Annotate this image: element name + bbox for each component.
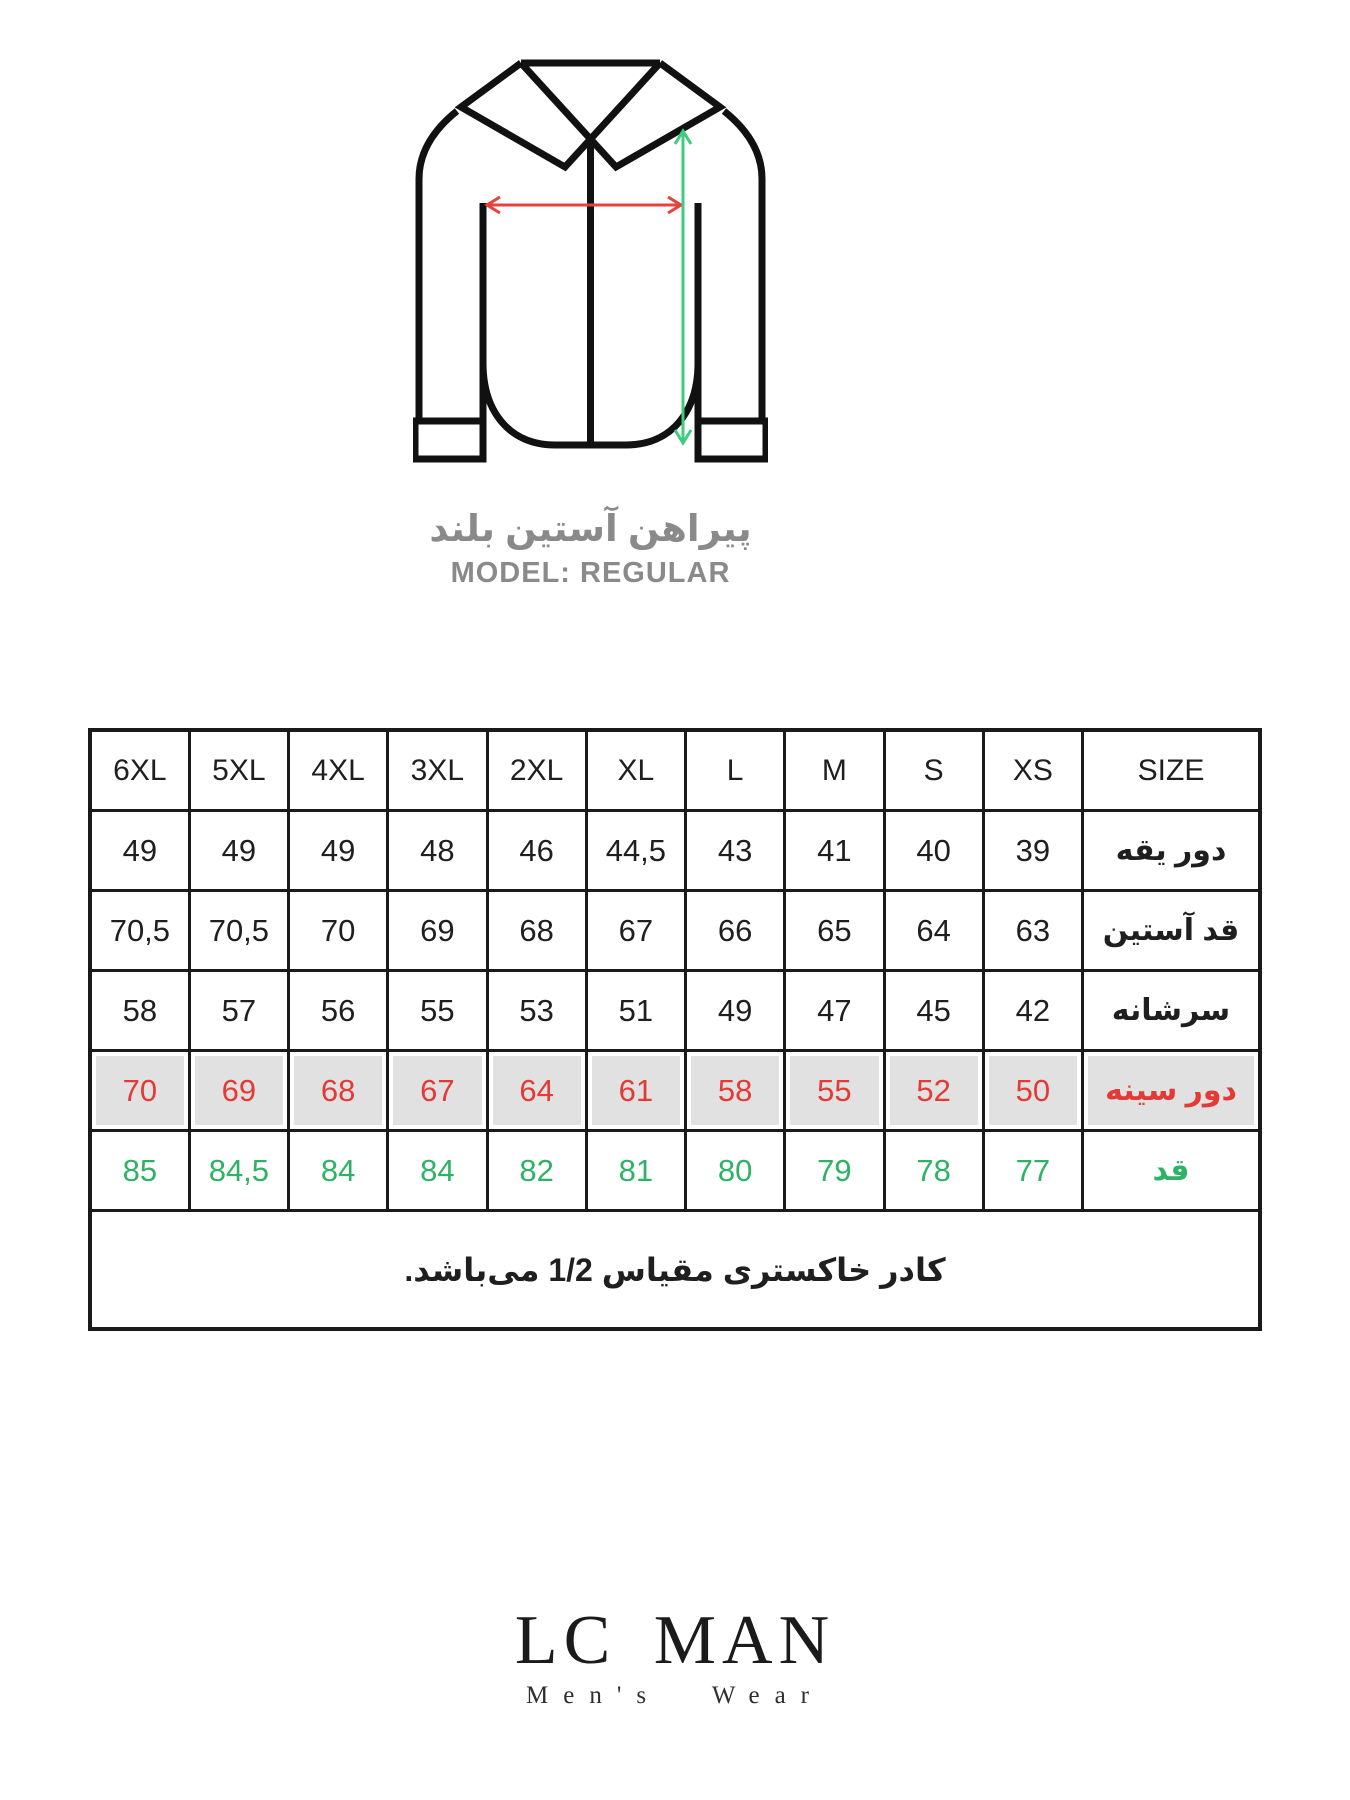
size-table: 6XL 5XL 4XL 3XL 2XL XL L M S XS SIZE 49 … [88, 728, 1262, 1331]
measure-cell: 70,5 [90, 891, 189, 971]
right-sleeve-outer [724, 111, 762, 421]
measure-cell: 63 [983, 891, 1082, 971]
size-column-header: 4XL [289, 730, 388, 811]
brand-logo-name: LC MAN [0, 1606, 1350, 1676]
length-arrow [675, 131, 691, 443]
collar-left-leaf [461, 63, 660, 167]
size-column-header: 5XL [189, 730, 288, 811]
measure-cell: 85 [90, 1131, 189, 1211]
size-label-header: SIZE [1083, 730, 1261, 811]
measure-cell: 48 [388, 811, 487, 891]
collar-row: 49 49 49 48 46 44,5 43 41 40 39 دور یقه [90, 811, 1260, 891]
measure-cell: 45 [884, 971, 983, 1051]
measure-cell: 56 [289, 971, 388, 1051]
measure-cell: 67 [388, 1051, 487, 1131]
measure-cell: 51 [586, 971, 685, 1051]
row-label-length: قد [1083, 1131, 1261, 1211]
measure-cell: 84 [289, 1131, 388, 1211]
measure-cell: 77 [983, 1131, 1082, 1211]
shoulder-row: 58 57 56 55 53 51 49 47 45 42 سرشانه [90, 971, 1260, 1051]
measure-cell: 41 [785, 811, 884, 891]
measure-cell: 70,5 [189, 891, 288, 971]
measure-cell: 70 [289, 891, 388, 971]
measure-cell: 43 [686, 811, 785, 891]
measure-cell: 81 [586, 1131, 685, 1211]
left-cuff [415, 421, 483, 459]
measure-cell: 49 [289, 811, 388, 891]
shirt-outline [415, 63, 766, 459]
size-column-header: XL [586, 730, 685, 811]
measure-cell: 64 [884, 891, 983, 971]
size-column-header: 6XL [90, 730, 189, 811]
brand-logo: LC MAN Men's Wear [0, 1606, 1350, 1710]
measure-cell: 53 [487, 971, 586, 1051]
size-column-header: 2XL [487, 730, 586, 811]
row-label-shoulder: سرشانه [1083, 971, 1261, 1051]
size-column-header: L [686, 730, 785, 811]
length-row: 85 84,5 84 84 82 81 80 79 78 77 قد [90, 1131, 1260, 1211]
measure-cell: 39 [983, 811, 1082, 891]
size-column-header: XS [983, 730, 1082, 811]
row-label-sleeve: قد آستین [1083, 891, 1261, 971]
left-sleeve-outer [419, 111, 457, 421]
shirt-diagram-block: پیراهن آستین بلند MODEL: REGULAR [413, 55, 768, 590]
row-label-chest: دور سینه [1083, 1051, 1261, 1131]
measure-cell: 64 [487, 1051, 586, 1131]
measure-cell: 49 [686, 971, 785, 1051]
measure-cell: 82 [487, 1131, 586, 1211]
measure-cell: 58 [90, 971, 189, 1051]
measure-cell: 65 [785, 891, 884, 971]
collar-right-leaf [521, 63, 720, 167]
measure-cell: 78 [884, 1131, 983, 1211]
measure-cell: 40 [884, 811, 983, 891]
chest-width-arrow [487, 197, 681, 213]
measure-cell: 70 [90, 1051, 189, 1131]
measure-cell: 68 [289, 1051, 388, 1131]
row-label-collar: دور یقه [1083, 811, 1261, 891]
table-note-row: کادر خاکستری مقیاس 1/2 می‌باشد. [90, 1211, 1260, 1330]
measure-cell: 57 [189, 971, 288, 1051]
measure-cell: 44,5 [586, 811, 685, 891]
sleeve-length-row: 70,5 70,5 70 69 68 67 66 65 64 63 قد آست… [90, 891, 1260, 971]
brand-logo-tagline: Men's Wear [0, 1682, 1350, 1710]
measure-cell: 68 [487, 891, 586, 971]
size-column-header: 3XL [388, 730, 487, 811]
measure-cell: 80 [686, 1131, 785, 1211]
measure-cell: 46 [487, 811, 586, 891]
measure-cell: 49 [90, 811, 189, 891]
measure-cell: 69 [388, 891, 487, 971]
measure-cell: 61 [586, 1051, 685, 1131]
size-column-header: S [884, 730, 983, 811]
measure-cell: 79 [785, 1131, 884, 1211]
measure-cell: 42 [983, 971, 1082, 1051]
model-label: MODEL: REGULAR [413, 558, 768, 590]
measure-cell: 55 [388, 971, 487, 1051]
size-chart-page: { "diagram": { "title_fa": "پیراهن آستین… [0, 0, 1350, 1800]
right-cuff [698, 421, 766, 459]
measure-cell: 47 [785, 971, 884, 1051]
chest-row-highlighted: 70 69 68 67 64 61 58 55 52 50 دور سینه [90, 1051, 1260, 1131]
measure-cell: 66 [686, 891, 785, 971]
measure-cell: 52 [884, 1051, 983, 1131]
scale-note: کادر خاکستری مقیاس 1/2 می‌باشد. [90, 1211, 1260, 1330]
size-column-header: M [785, 730, 884, 811]
table-header-row: 6XL 5XL 4XL 3XL 2XL XL L M S XS SIZE [90, 730, 1260, 811]
shirt-diagram [413, 55, 768, 467]
measure-cell: 84,5 [189, 1131, 288, 1211]
measure-cell: 50 [983, 1051, 1082, 1131]
measure-cell: 84 [388, 1131, 487, 1211]
measure-cell: 58 [686, 1051, 785, 1131]
measure-cell: 69 [189, 1051, 288, 1131]
measure-cell: 55 [785, 1051, 884, 1131]
measure-cell: 67 [586, 891, 685, 971]
garment-title-farsi: پیراهن آستین بلند [413, 509, 768, 550]
measure-cell: 49 [189, 811, 288, 891]
